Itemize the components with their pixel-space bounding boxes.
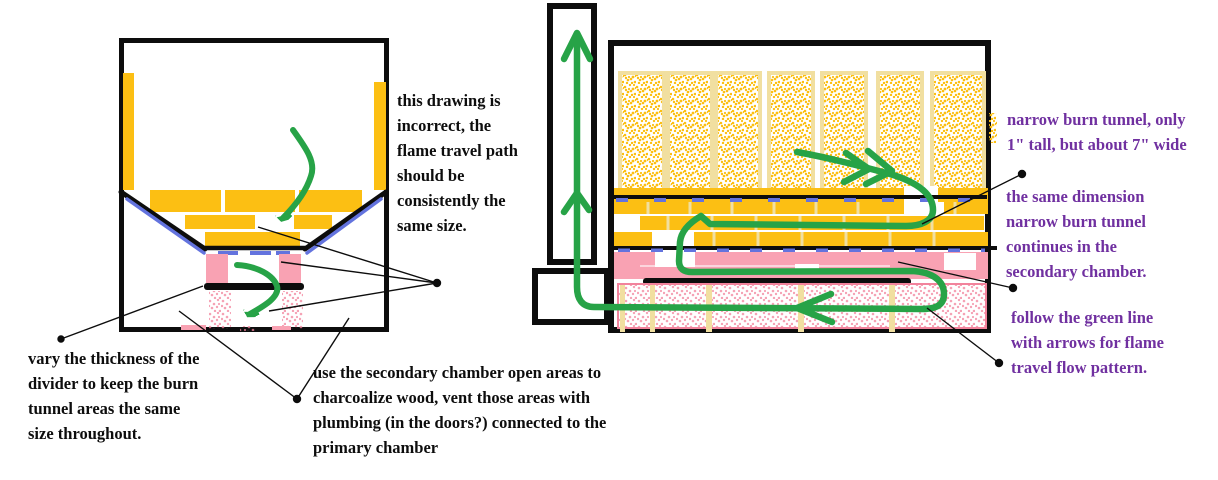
left-side-brick-bars <box>123 73 386 190</box>
right-kiln-cross-section <box>535 6 1026 367</box>
note-narrow-burn-tunnel: narrow burn tunnel, only 1" tall, but ab… <box>1007 107 1217 157</box>
stray-spray-marks <box>989 113 997 143</box>
left-divider-bar <box>204 283 304 290</box>
paint-diagram-canvas: this drawing is incorrect, the flame tra… <box>0 0 1218 480</box>
note-secondary-chamber: use the secondary chamber open areas to … <box>313 360 658 460</box>
note-vary-divider: vary the thickness of the divider to kee… <box>28 346 248 446</box>
chimney-base-box <box>535 271 607 322</box>
note-follow-green-line: follow the green line with arrows for fl… <box>1011 305 1218 380</box>
note-same-dimension: the same dimension narrow burn tunnel co… <box>1006 184 1216 284</box>
note-drawing-incorrect: this drawing is incorrect, the flame tra… <box>397 88 547 238</box>
wood-load-columns <box>620 73 984 190</box>
